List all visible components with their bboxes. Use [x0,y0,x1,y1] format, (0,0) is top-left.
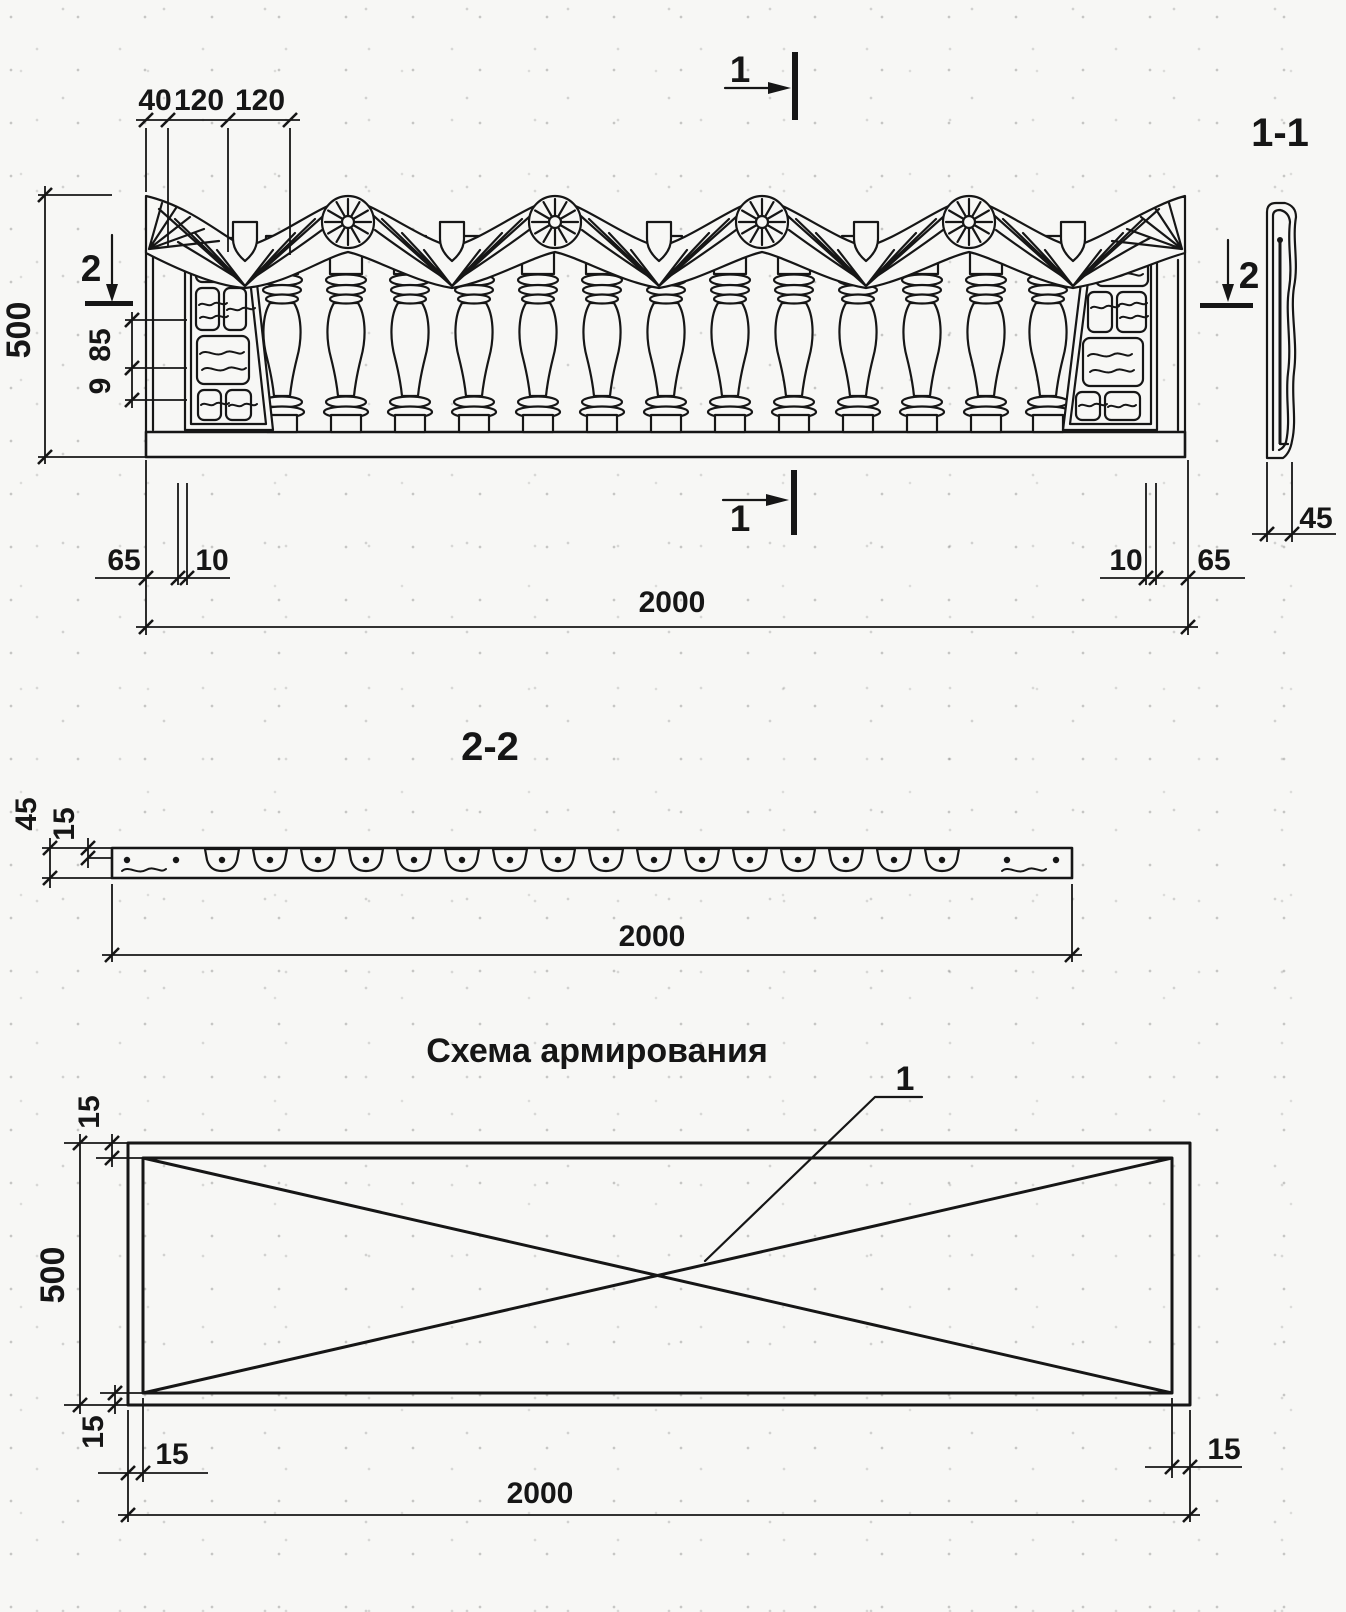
front-view: 1 1 2 2 [0,49,1336,635]
dim-15-top-label: 15 [73,1095,106,1128]
baluster-section [445,849,479,871]
baluster [516,236,560,432]
cut-label-1-top: 1 [730,49,751,90]
callout-1-label: 1 [896,1060,915,1098]
rosette [943,196,995,248]
rosette [322,196,374,248]
baluster-section [733,849,767,871]
dim-2000-section22-label: 2000 [619,920,686,953]
dim-85-9: 85 9 [84,312,187,408]
reinforcement-view: Схема армирования 1 15 500 15 [34,1032,1242,1522]
section-mark-2-right: 2 [1200,240,1259,308]
baluster-section [205,849,239,871]
baluster-section [637,849,671,871]
section-mark-2-left: 2 [81,235,133,306]
rosette [736,196,788,248]
fence-panel-drawing: 1 1 2 2 [0,0,1346,1612]
dim-45-section11: 45 [1252,462,1336,542]
drawing-sheet: 1 1 2 2 [0,0,1346,1612]
section-1-1-view: 1-1 45 [1251,111,1336,542]
ornament-band [146,196,1185,288]
dim-65-right-label: 65 [1197,544,1230,577]
dim-45-section22-label: 45 [10,797,43,830]
dim-15-bottom-right: 15 [1145,1398,1242,1478]
dim-2000-reinforcement: 2000 [118,1410,1200,1522]
bottom-rail [146,432,1185,457]
baluster-section [829,849,863,871]
baluster-section [493,849,527,871]
baluster-section [541,849,575,871]
dim-2000-front: 2000 [136,460,1198,635]
baluster-section [397,849,431,871]
dim-2000-front-label: 2000 [639,586,706,619]
dim-15-bottom-left-horizontal: 15 [98,1398,208,1522]
dim-85-label: 85 [84,328,117,361]
baluster [964,236,1008,432]
baluster-section [685,849,719,871]
dim-40-label: 40 [138,84,171,117]
dim-500-left: 500 [0,186,146,464]
dim-15-top-left: 15 [73,1095,143,1167]
baluster-section [349,849,383,871]
baluster-section [877,849,911,871]
dim-65-10-left: 65 10 [95,483,230,585]
dim-10-65-right: 10 65 [1100,483,1245,585]
section-2-2-view: 2-2 [10,725,1082,962]
dim-15-bottom-label: 15 [77,1415,110,1448]
cut-label-2-right: 2 [1239,255,1260,296]
dim-500-label: 500 [0,302,38,359]
dim-45-15-section22: 45 15 [10,797,112,888]
dim-10-left-label: 10 [195,544,228,577]
section-2-2-title: 2-2 [461,725,519,769]
section-1-1-title: 1-1 [1251,111,1309,155]
baluster-section [781,849,815,871]
dim-45-label: 45 [1299,502,1332,535]
baluster-section [925,849,959,871]
dim-15-section22-label: 15 [48,807,81,840]
dim-500-reinforcement: 500 [34,1134,128,1414]
dim-120b-label: 120 [235,84,285,117]
section-mark-1-top: 1 [725,49,798,120]
baluster-section [589,849,623,871]
dim-500-reinforcement-label: 500 [34,1247,72,1304]
cut-label-2-left: 2 [81,248,102,289]
dim-15-left-label: 15 [155,1438,188,1471]
dim-2000-section22: 2000 [102,884,1082,962]
section-mark-1-bottom: 1 [723,470,797,539]
baluster-section [301,849,335,871]
dim-15-bottom-left-vertical: 15 [77,1385,143,1449]
baluster-section [253,849,287,871]
rosette [529,196,581,248]
dim-9-label: 9 [84,378,117,395]
dim-2000-reinforcement-label: 2000 [507,1477,574,1510]
dim-10-right-label: 10 [1109,544,1142,577]
baluster [324,236,368,432]
dim-120a-label: 120 [174,84,224,117]
cut-label-1-bottom: 1 [730,498,751,539]
callout-1: 1 [705,1060,922,1261]
reinforcement-title: Схема армирования [426,1032,768,1070]
dim-65-left-label: 65 [107,544,140,577]
dim-15-right-label: 15 [1207,1433,1240,1466]
